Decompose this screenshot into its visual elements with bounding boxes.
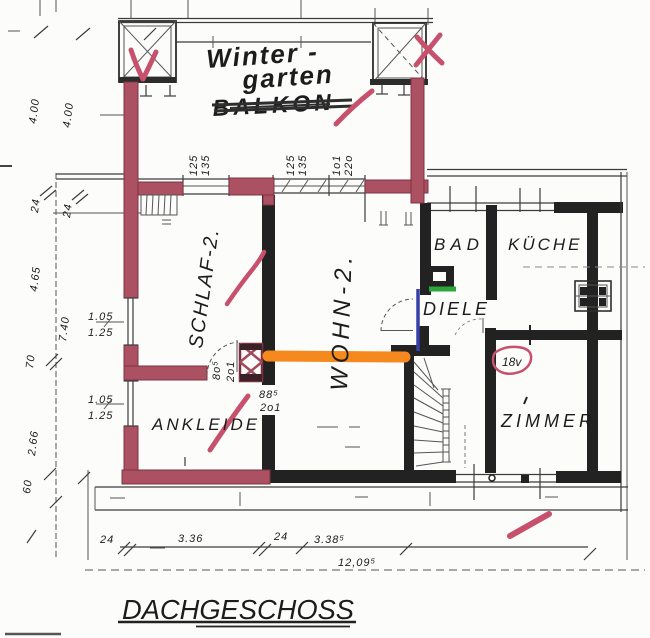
svg-text:125: 125 (285, 155, 297, 176)
svg-text:KÜCHE: KÜCHE (508, 235, 583, 254)
svg-text:24: 24 (99, 534, 114, 546)
svg-text:ZIMMER: ZIMMER (500, 411, 596, 431)
svg-text:ANKLEIDE: ANKLEIDE (151, 415, 260, 434)
svg-text:24: 24 (273, 531, 288, 543)
svg-text:24: 24 (29, 198, 43, 215)
svg-text:DACHGESCHOSS: DACHGESCHOSS (122, 594, 354, 625)
svg-text:2o1: 2o1 (225, 361, 237, 383)
svg-text:125: 125 (188, 155, 200, 176)
svg-text:1o1: 1o1 (331, 155, 343, 176)
svg-text:WOHN-2.: WOHN-2. (326, 251, 358, 391)
svg-text:3.38⁵: 3.38⁵ (314, 534, 345, 546)
svg-text:60: 60 (21, 479, 35, 495)
svg-text:88⁵: 88⁵ (259, 389, 279, 401)
svg-text:1.05: 1.05 (88, 311, 113, 323)
svg-text:24: 24 (61, 203, 75, 220)
svg-text:1.25: 1.25 (88, 410, 113, 422)
svg-text:22o: 22o (343, 155, 355, 177)
svg-text:3.36: 3.36 (178, 533, 203, 545)
svg-text:DIELE: DIELE (423, 299, 490, 319)
svg-text:BAD: BAD (434, 235, 484, 254)
svg-text:70: 70 (24, 354, 38, 370)
svg-text:135: 135 (297, 155, 309, 176)
svg-text:12,09⁵: 12,09⁵ (338, 557, 376, 569)
svg-text:18v: 18v (502, 355, 522, 369)
svg-text:2o1: 2o1 (259, 402, 281, 414)
svg-text:1.25: 1.25 (88, 327, 113, 339)
svg-text:135: 135 (200, 155, 212, 176)
svg-text:8o⁵: 8o⁵ (211, 360, 223, 380)
